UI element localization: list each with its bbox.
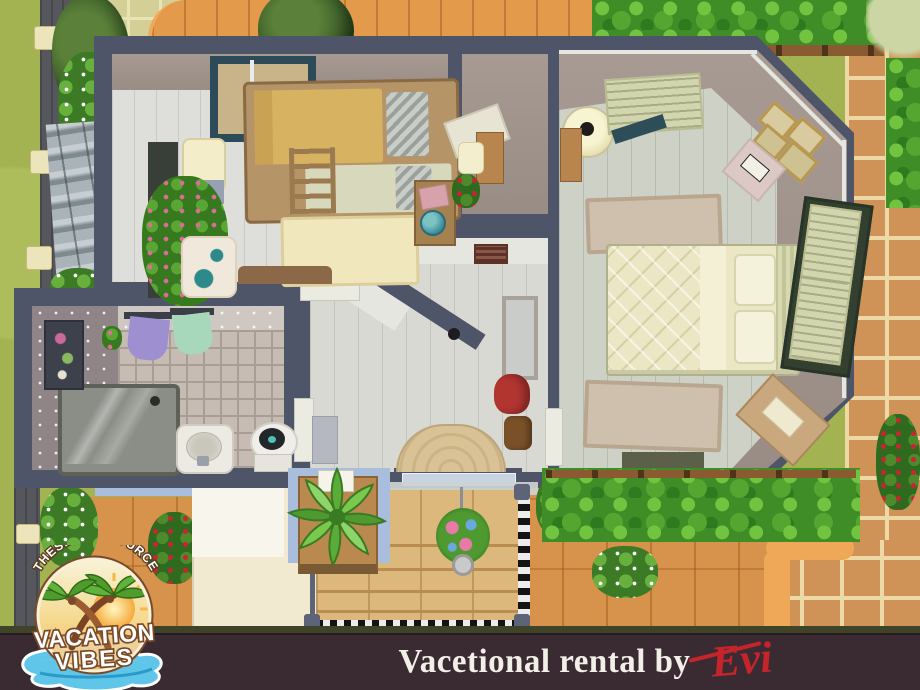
toddler-dresser [181,236,237,298]
hedge-bottom-planter [546,470,856,478]
step-edge [316,610,518,613]
master-rug-bottom [583,380,723,453]
caption-text: Vacetional rental by [399,643,691,681]
hall-side-table [312,416,338,464]
nook-lamp [458,142,484,174]
bunk-top-pillow [386,92,429,157]
fence-post [26,246,52,270]
caption: Vacetional rental by Evi [394,640,772,681]
stair-stripe-right [518,490,530,630]
hedge-right [886,58,920,208]
master-trim-top [559,50,757,54]
flower-patch-deck [592,546,658,598]
pendant-light-center [580,122,594,136]
rose-hedge-right [876,414,920,510]
kids-table-bottom [238,266,332,284]
floorplan-scene: Vacetional rental by Evi [0,0,920,690]
double-bed [606,244,800,376]
railing-post [514,484,530,500]
fence-post [16,524,40,544]
ceiling-vent [474,244,508,264]
vacation-vibes-logo: THESIMSRESOURCE VACATION VIBES [12,545,182,690]
bag-brown [504,416,532,450]
bunk-ladder [289,147,336,214]
sink-faucet [197,456,209,466]
desk-globe [420,210,446,236]
shower [58,384,180,476]
porch-ground-light [452,554,474,576]
nook-flowers [452,174,480,208]
hedge-bottom [542,468,860,542]
awning-roof-upper [192,487,284,557]
bathroom-shelf [44,320,84,390]
bed-pillow [734,254,776,306]
toilet-water [268,436,276,443]
coat-red [494,374,530,414]
right-window-blinds [789,204,862,366]
shower-head [150,396,160,406]
bed-pillow [734,310,776,364]
bunk-top-blanket-fold [254,90,273,164]
master-wardrobe [560,128,582,182]
grass-blur-top-right [866,0,920,60]
bed-quilt [608,246,700,370]
step-edge [316,590,518,593]
bathroom-door [294,398,314,462]
ceiling-light-dot [448,328,460,340]
logo-line2: VIBES [54,643,135,674]
master-door [545,408,563,466]
bathroom-plant [102,326,122,350]
potted-plant-leaves [286,462,388,568]
bed-runner [700,246,726,370]
hall-mirror [502,296,538,380]
